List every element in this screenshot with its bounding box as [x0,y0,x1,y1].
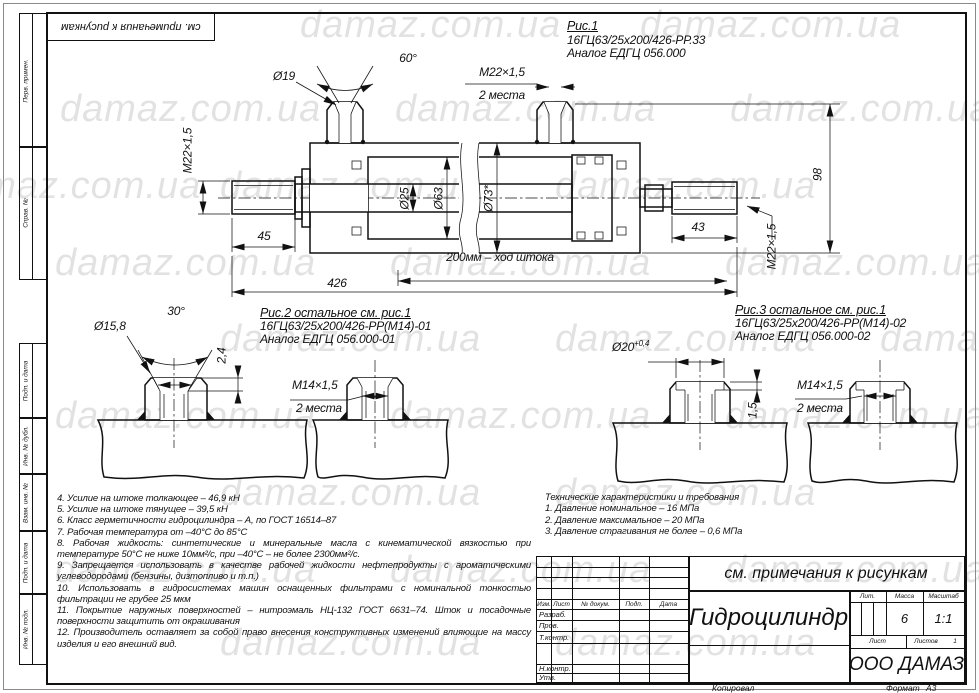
note-item: 9. Запрещается использовать в качестве р… [57,560,531,582]
dim-thread: M14×1,5 [292,379,338,392]
port-left [325,102,365,144]
sheet-label: Лист [849,635,906,648]
fig3-analog: Аналог ЕДГЦ 056.000-02 [735,330,870,343]
copied-label: Копировал [712,683,754,693]
mass-value: 6 [886,602,923,635]
row-nkontr: Н.контр. [537,664,574,673]
corner-note-box: см. примечания к рисункам [46,13,215,41]
title-block-note: см. примечания к рисункам [688,557,964,590]
scale-label: Масштаб [923,590,964,602]
col-izm: Изм. [537,599,551,609]
dim-depth: 2,4 [215,336,228,376]
dim-thread: M14×1,5 [797,379,843,392]
dim-tolerance: +0,4 [634,339,649,348]
grid-line [537,577,688,578]
company-name: ООО ДАМАЗ [849,648,964,682]
dim-places: 2 места [797,402,843,415]
format-label: Формат [886,683,920,693]
margin-label: Перв. примен. [23,59,30,102]
margin-label: Инв. № дубл. [23,426,30,466]
col-podp: Подп. [619,599,649,609]
note-item: 6. Класс герметичности гидроцилиндра – А… [57,515,531,526]
divider [32,474,33,531]
sheets-value: 1 [946,635,964,648]
margin-label: Взам. инв. № [23,482,30,522]
fig2-view [98,336,448,479]
margin-label: Инв. № подл. [23,609,30,649]
dim-port-diameter: Ø19 [264,70,304,83]
plate [98,420,307,479]
dim-rod-thread-left: M22×1,5 [181,121,194,181]
note-item: 10. Использовать в гидросистемах машин о… [57,583,531,605]
margin-label: Подп. и дата [23,361,30,402]
grid-line [861,602,862,635]
margin-box-vzam-inv: Взам. инв. № [19,473,48,532]
grid-line [537,567,688,568]
dim-port-places: 2 места [467,89,537,102]
dim-total-length: 426 [314,277,360,290]
divider [32,418,33,474]
spec-item: 3. Давление страгивания не более – 0,6 М… [545,526,875,537]
note-item: 8. Рабочая жидкость: синтетические и мин… [57,538,531,560]
port-right [535,102,575,144]
note-item: 7. Рабочая температура от –40°С до 85°С [57,527,531,538]
fig1-analog: Аналог ЕДГЦ 056.000 [567,47,685,60]
note-item: 5. Усилие на штоке тянущее – 39,5 кН [57,504,531,515]
row-prov: Пров. [537,620,574,631]
dim-cone-angle: 30° [158,305,194,318]
margin-box-inv-podl: Инв. № подл. [19,593,48,665]
notes-list: 4. Усилие на штоке толкающее – 46,9 кН 5… [57,493,531,650]
dim-depth: 1,5 [746,391,759,431]
sheets-label: Листов [906,635,946,648]
dim-places: 2 места [296,402,342,415]
dim-port-thread: M22×1,5 [467,66,537,79]
dim-rod-diameter: Ø25 [398,174,411,224]
margin-box-inv-dubl: Инв. № дубл. [19,417,48,475]
fig3-view [613,358,957,483]
spec-item: 2. Давление максимальное – 20 МПа [545,515,875,526]
document-name: Гидроцилиндр [688,590,849,645]
dim-value: Ø20 [612,340,634,354]
title-block: см. примечания к рисункам Гидроцилиндр Л… [536,556,965,683]
dim-bore-diameter: Ø63 [432,174,445,224]
margin-box-podp-data-1: Подп. и дата [19,343,48,419]
col-doc: № докум. [572,599,619,609]
margin-box-sprav-no: Справ. № [19,146,48,280]
corner-note: см. примечания к рисункам [61,21,201,33]
dim-rod-length-right: 43 [678,221,718,234]
format-value: А3 [926,683,936,693]
grid-line [537,588,688,589]
dim-hole-diameter: Ø15,8 [94,320,126,333]
margin-label: Подп. и дата [23,542,30,583]
fig2-analog: Аналог ЕДГЦ 056.000-01 [260,333,395,346]
row-utv: Утв. [537,673,574,682]
grid-line [537,643,688,644]
fig1-title: Рис.1 [567,20,598,34]
row-tkontr: Т.контр. [537,631,574,643]
note-item: 11. Покрытие наружных поверхностей – нит… [57,605,531,627]
col-data: Дата [649,599,688,609]
specs-title: Технические характеристики и требования [545,492,875,503]
note-item: 12. Производитель оставляет за собой пра… [57,627,531,649]
divider [32,594,33,664]
margin-box-perv-primen: Перв. примен. [19,13,48,148]
plate [808,423,957,483]
divider [32,344,33,418]
divider [32,147,33,279]
dim-cone-angle: 60° [390,52,426,65]
grid-line [873,602,874,635]
mass-label: Масса [886,590,923,602]
tech-specs: Технические характеристики и требования … [545,492,875,538]
dim-height: 98 [811,150,824,200]
dim-rod-length-left: 45 [244,230,284,243]
margin-box-podp-data-2: Подп. и дата [19,530,48,595]
divider [32,531,33,594]
divider [32,14,33,147]
dim-stroke: 200мм – ход штока [420,251,580,264]
drawing-sheet: damaz.com.ua damaz.com.ua damaz.com.ua d… [0,0,979,693]
note-item: 4. Усилие на штоке толкающее – 46,9 кН [57,493,531,504]
dim-rod-thread-right: M22×1,5 [765,217,778,277]
spec-item: 1. Давление номинальное – 16 МПа [545,503,875,514]
scale-value: 1:1 [923,602,964,635]
rod-left [232,181,295,214]
grid-line [688,645,849,646]
col-list: Лист [551,599,572,609]
row-razrab: Разраб. [537,609,574,620]
lit-label: Лит. [849,590,886,602]
dim-outer-diameter: Ø73* [482,174,495,224]
plate [313,420,448,479]
margin-label: Справ. № [23,198,30,228]
dim-bore-diameter: Ø20+0,4 [612,340,649,354]
